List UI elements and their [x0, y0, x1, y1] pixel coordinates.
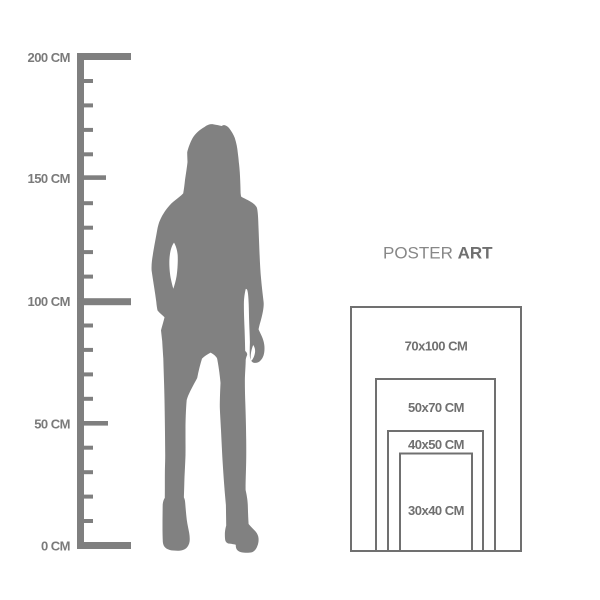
svg-text:0 CM: 0 CM	[41, 539, 70, 554]
svg-text:50x70 CM: 50x70 CM	[408, 400, 464, 415]
svg-text:40x50 CM: 40x50 CM	[408, 437, 464, 452]
svg-text:150 CM: 150 CM	[27, 171, 70, 186]
svg-text:100 CM: 100 CM	[27, 294, 70, 309]
svg-text:70x100 CM: 70x100 CM	[405, 339, 468, 354]
svg-text:50 CM: 50 CM	[34, 416, 70, 431]
svg-text:30x40 CM: 30x40 CM	[408, 503, 464, 518]
svg-text:200 CM: 200 CM	[27, 50, 70, 65]
svg-text:POSTER ART: POSTER ART	[383, 244, 493, 263]
